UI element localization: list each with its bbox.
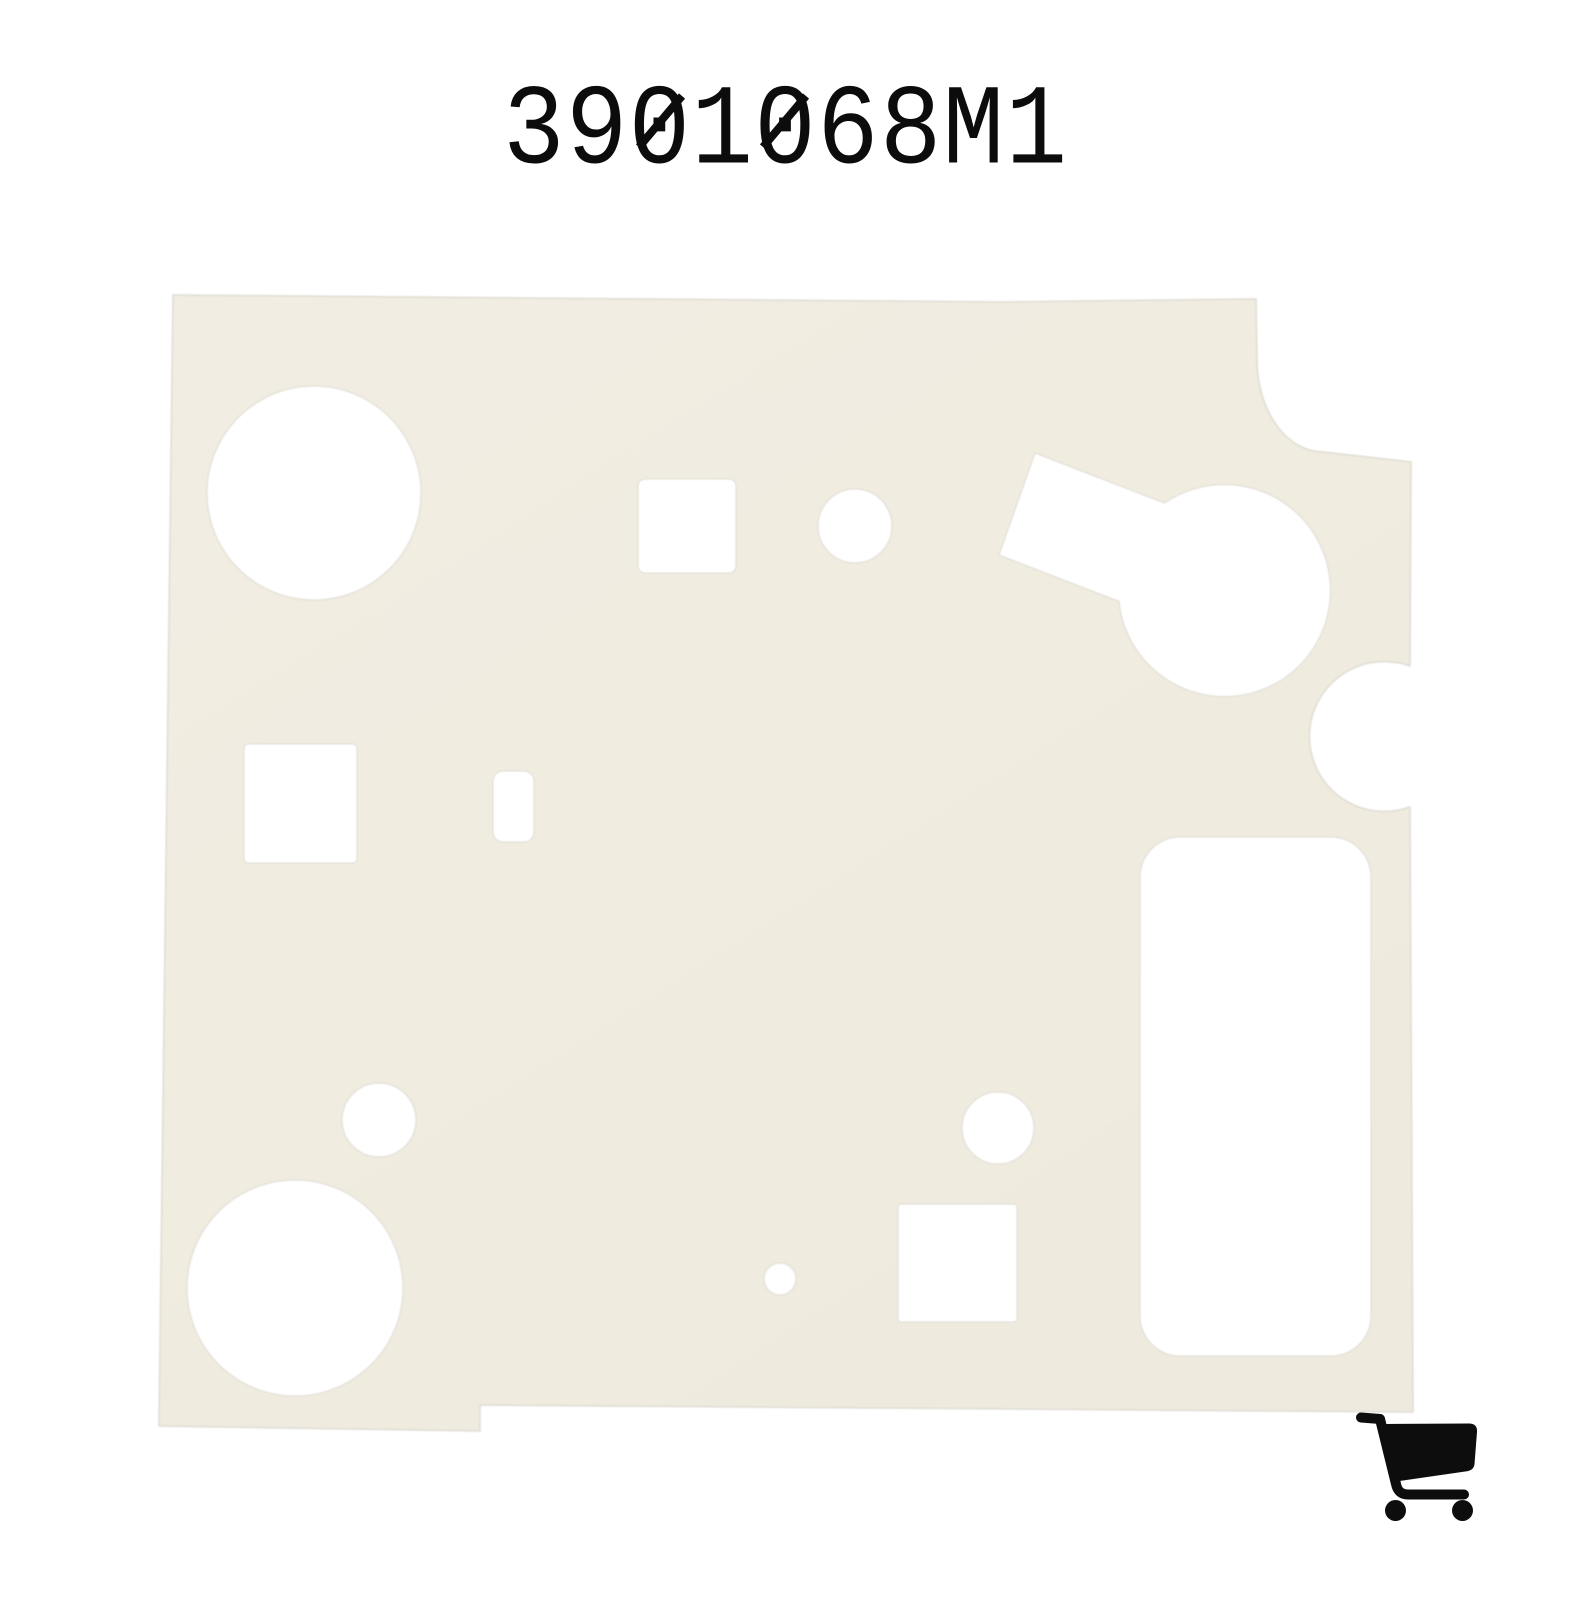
svg-text:3901068M1: 3901068M1 bbox=[503, 68, 1067, 197]
